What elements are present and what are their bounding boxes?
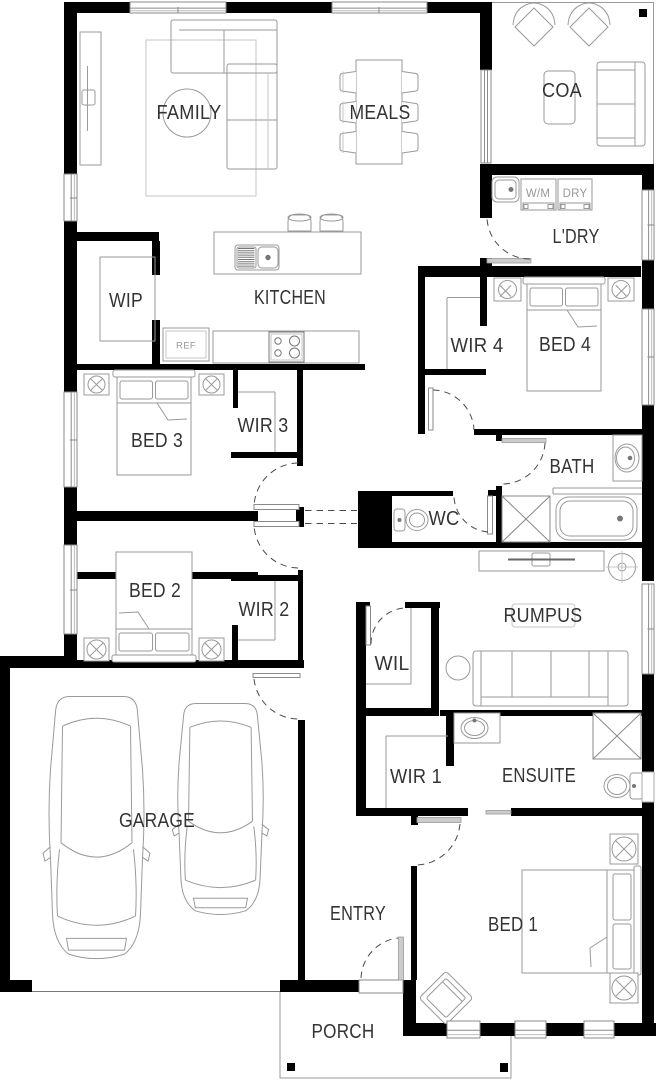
svg-text:MEALS: MEALS [350, 102, 411, 124]
svg-text:PORCH: PORCH [312, 1021, 375, 1043]
svg-text:WIR 3: WIR 3 [238, 415, 289, 437]
svg-text:BED 3: BED 3 [131, 430, 183, 452]
svg-text:ENTRY: ENTRY [330, 903, 386, 925]
svg-text:L'DRY: L'DRY [553, 226, 600, 248]
svg-text:WIL: WIL [375, 653, 410, 675]
svg-text:WIR 4: WIR 4 [451, 335, 504, 357]
svg-text:WIR 2: WIR 2 [239, 599, 290, 621]
svg-text:REF: REF [176, 341, 196, 352]
svg-text:DRY: DRY [563, 188, 588, 200]
svg-text:ENSUITE: ENSUITE [502, 765, 576, 787]
svg-text:WIP: WIP [109, 290, 143, 312]
svg-text:BATH: BATH [550, 456, 595, 478]
svg-text:WC: WC [429, 508, 460, 530]
svg-text:KITCHEN: KITCHEN [254, 287, 326, 309]
svg-text:BED 4: BED 4 [539, 334, 591, 356]
svg-text:COA: COA [542, 80, 582, 102]
svg-text:FAMILY: FAMILY [157, 102, 222, 124]
svg-text:GARAGE: GARAGE [119, 810, 195, 832]
svg-text:WIR 1: WIR 1 [390, 766, 442, 788]
svg-text:BED 1: BED 1 [488, 914, 538, 936]
svg-text:BED 2: BED 2 [129, 580, 181, 602]
svg-text:W/M: W/M [526, 188, 550, 200]
svg-text:RUMPUS: RUMPUS [504, 605, 583, 627]
